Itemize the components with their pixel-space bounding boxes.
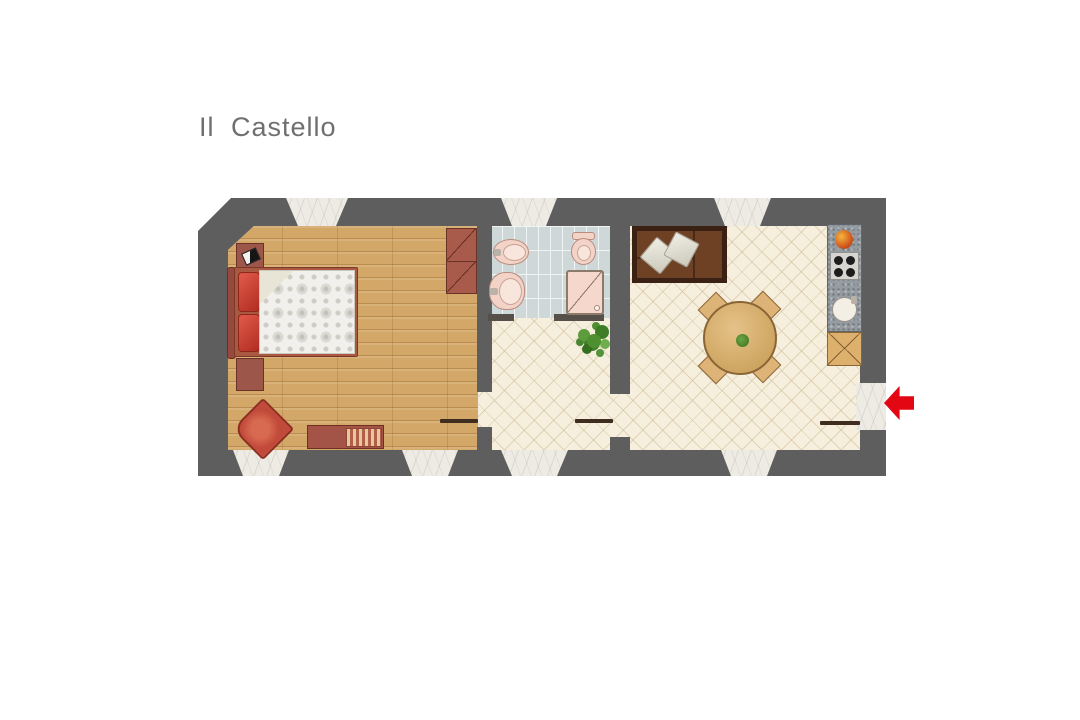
- duvet-fold: [260, 271, 294, 304]
- shower-drain: [594, 305, 600, 311]
- door-bedroom: [440, 419, 478, 423]
- floor-plan-canvas: Il Castello: [0, 0, 1080, 720]
- nightstand-bottom: [236, 358, 264, 391]
- washbasin-bowl: [499, 278, 522, 305]
- burner-1: [834, 256, 843, 265]
- bed-pillow-1: [238, 272, 260, 312]
- dining-table: [703, 301, 777, 375]
- kitchen-cabinet: [827, 332, 862, 366]
- bidet-bowl: [503, 244, 526, 261]
- kitchen-counter: [827, 224, 862, 332]
- partition-wall-bedroom-upper: [477, 226, 492, 392]
- door-entrance: [820, 421, 860, 425]
- washbasin-faucet: [490, 288, 498, 295]
- washbasin: [489, 272, 525, 310]
- shower: [566, 270, 604, 315]
- toilet: [571, 232, 597, 266]
- book: [241, 247, 261, 265]
- sink-faucet: [851, 296, 857, 304]
- bed: [234, 267, 358, 357]
- bed-duvet: [259, 270, 355, 354]
- wardrobe-door-top: [447, 229, 476, 262]
- door-hallway-living: [575, 419, 613, 423]
- partition-wall-living-upper: [610, 226, 630, 394]
- wardrobe: [446, 228, 477, 294]
- toilet-bowl: [571, 238, 596, 265]
- bench: [307, 425, 384, 449]
- bidet-faucet: [494, 249, 501, 256]
- kitchen-decor: [835, 230, 853, 249]
- plant: [587, 334, 601, 348]
- nightstand-top: [236, 243, 264, 268]
- partition-wall-bedroom-lower: [477, 427, 492, 450]
- entrance-arrow-icon: [884, 386, 914, 420]
- table-centerpiece: [736, 334, 749, 347]
- kitchen-sink: [832, 297, 857, 322]
- partition-wall-living-lower: [610, 437, 630, 450]
- burner-3: [834, 268, 843, 277]
- bathroom-wall-right-segment: [554, 314, 604, 321]
- entrance-threshold: [856, 383, 886, 430]
- toilet-seat: [577, 245, 591, 261]
- bench-stripes: [346, 428, 382, 447]
- bathroom-wall-left-segment: [488, 314, 514, 321]
- bed-pillow-2: [238, 314, 260, 352]
- wardrobe-door-bottom: [447, 262, 476, 293]
- burner-2: [846, 256, 855, 265]
- bidet: [493, 239, 529, 265]
- burner-4: [846, 268, 855, 277]
- stove: [830, 252, 859, 280]
- sofa: [632, 226, 727, 283]
- floor-plan: [0, 0, 1080, 720]
